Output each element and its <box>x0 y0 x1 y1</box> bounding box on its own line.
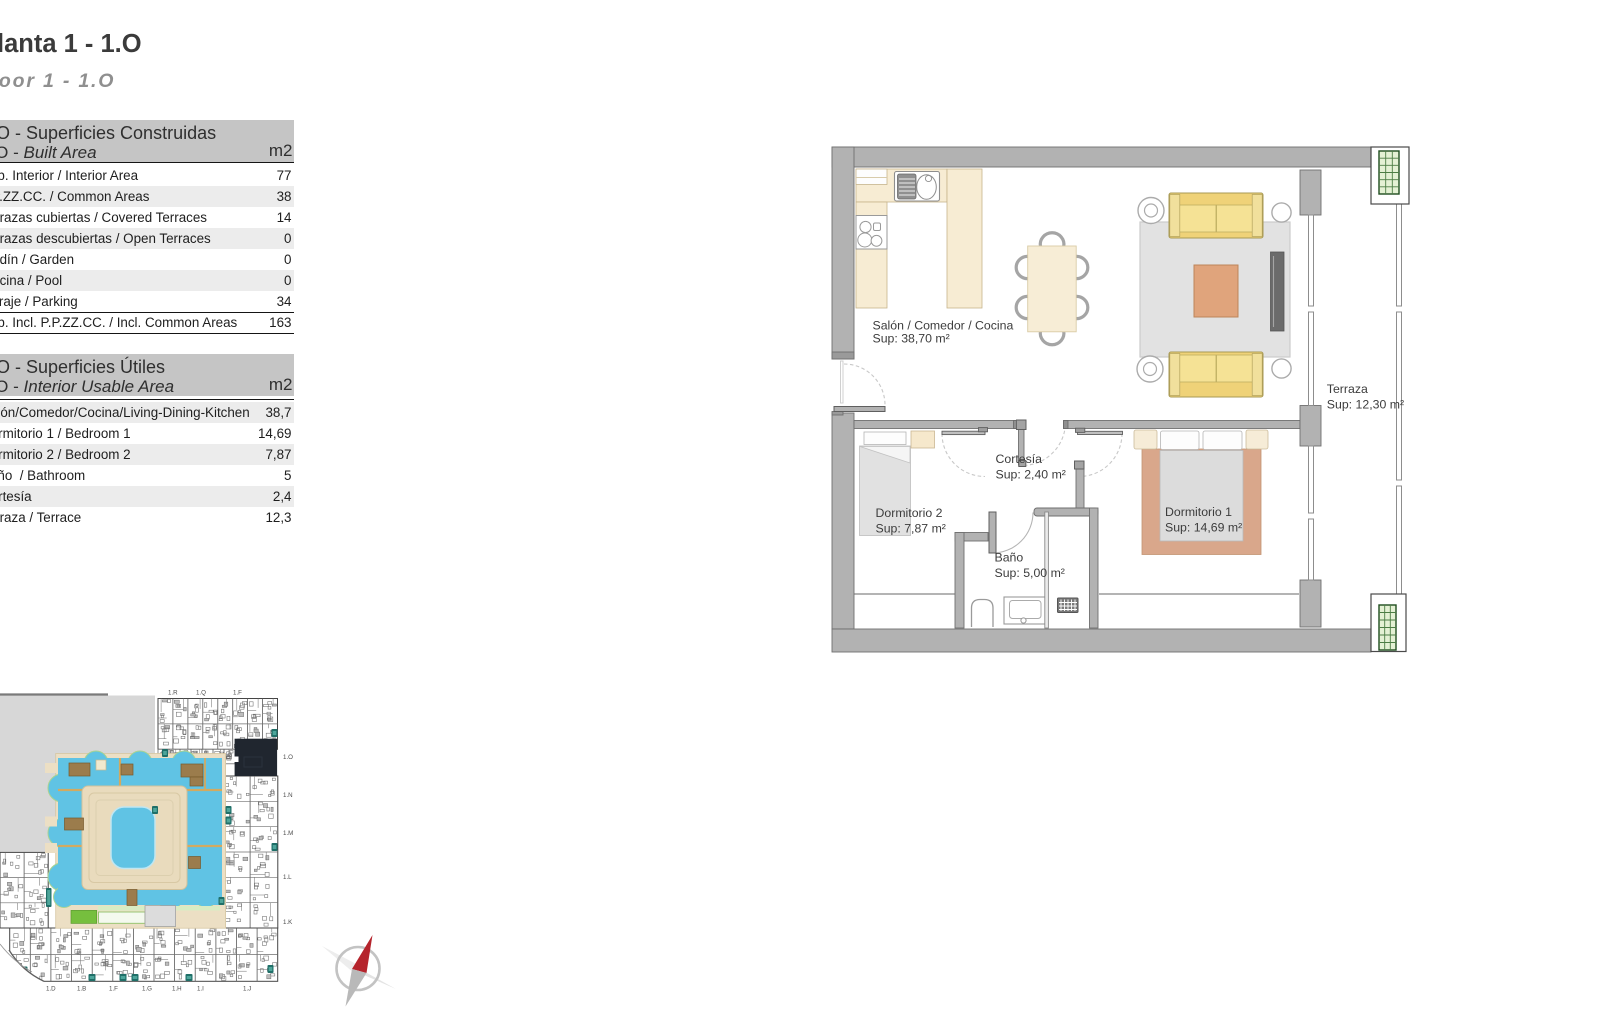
svg-text:1.Q: 1.Q <box>196 690 206 697</box>
svg-text:1.J: 1.J <box>243 986 251 993</box>
svg-text:1.K: 1.K <box>283 919 293 926</box>
svg-text:Sup: 38,70 m²: Sup: 38,70 m² <box>873 332 950 346</box>
svg-text:1.L: 1.L <box>283 874 292 881</box>
svg-text:1.D: 1.D <box>46 986 56 993</box>
svg-text:1.O: 1.O <box>283 754 293 761</box>
svg-text:Terraza: Terraza <box>1327 382 1368 396</box>
svg-text:1.M: 1.M <box>283 830 293 837</box>
svg-text:1.N: 1.N <box>283 792 293 799</box>
svg-text:Cortesía: Cortesía <box>996 452 1043 466</box>
svg-text:1.B: 1.B <box>77 986 86 993</box>
svg-text:Dormitorio 2: Dormitorio 2 <box>876 506 943 520</box>
svg-text:Sup: 5,00 m²: Sup: 5,00 m² <box>995 566 1065 580</box>
svg-text:1.F: 1.F <box>109 986 118 993</box>
svg-text:1.F: 1.F <box>233 690 242 697</box>
svg-text:1.I: 1.I <box>197 986 204 993</box>
svg-text:1.H: 1.H <box>172 986 182 993</box>
svg-text:Sup: 2,40 m²: Sup: 2,40 m² <box>996 468 1066 482</box>
svg-text:Baño: Baño <box>995 551 1024 565</box>
svg-text:Salón / Comedor / Cocina: Salón / Comedor / Cocina <box>873 319 1014 333</box>
svg-text:1.G: 1.G <box>142 986 152 993</box>
svg-text:Dormitorio 1: Dormitorio 1 <box>1165 505 1232 519</box>
svg-text:1.R: 1.R <box>168 690 178 697</box>
svg-text:Sup: 7,87 m²: Sup: 7,87 m² <box>876 522 946 536</box>
svg-text:Sup: 14,69 m²: Sup: 14,69 m² <box>1165 521 1242 535</box>
svg-text:Sup: 12,30 m²: Sup: 12,30 m² <box>1327 398 1404 412</box>
